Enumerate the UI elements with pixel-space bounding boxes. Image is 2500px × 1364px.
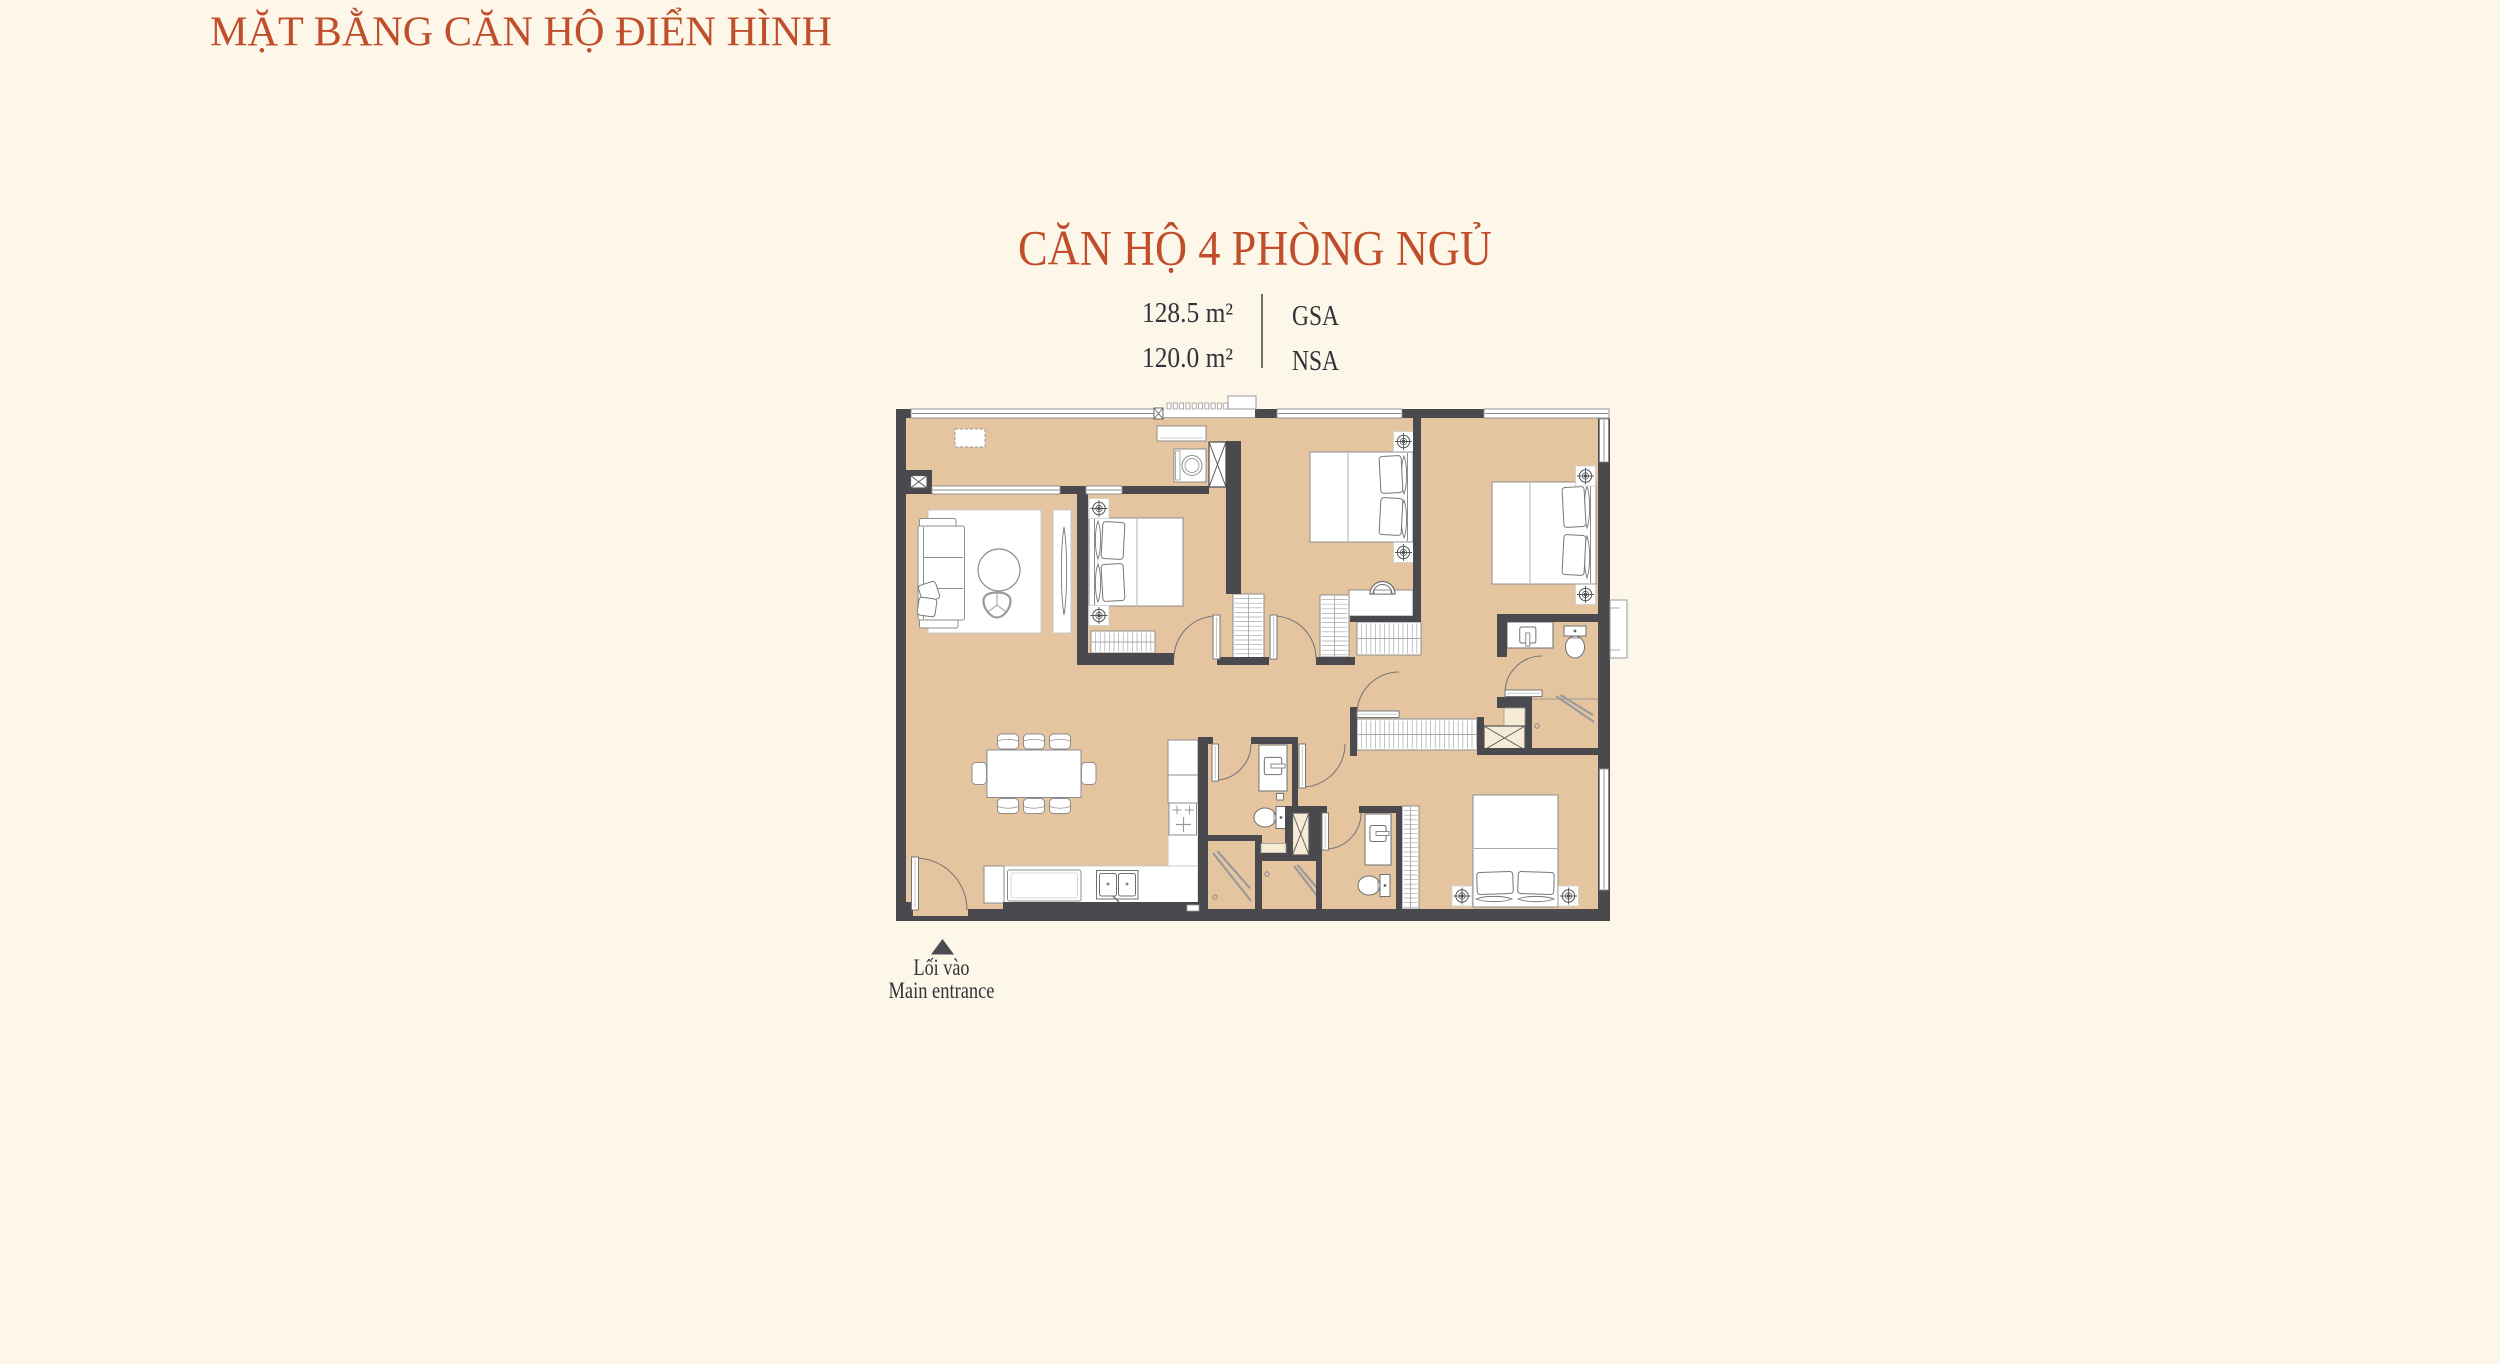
svg-text:NSA: NSA bbox=[1292, 346, 1340, 377]
svg-text:Main entrance: Main entrance bbox=[889, 978, 995, 1003]
svg-text:GSA: GSA bbox=[1292, 301, 1340, 332]
svg-text:Lối vào: Lối vào bbox=[914, 955, 970, 980]
svg-text:MẶT BẰNG CĂN HỘ ĐIỂN HÌNH: MẶT BẰNG CĂN HỘ ĐIỂN HÌNH bbox=[210, 8, 832, 56]
svg-text:128.5 m²: 128.5 m² bbox=[1142, 298, 1233, 329]
svg-text:CĂN HỘ 4 PHÒNG NGỦ: CĂN HỘ 4 PHÒNG NGỦ bbox=[1018, 220, 1492, 276]
svg-text:120.0 m²: 120.0 m² bbox=[1142, 343, 1233, 374]
